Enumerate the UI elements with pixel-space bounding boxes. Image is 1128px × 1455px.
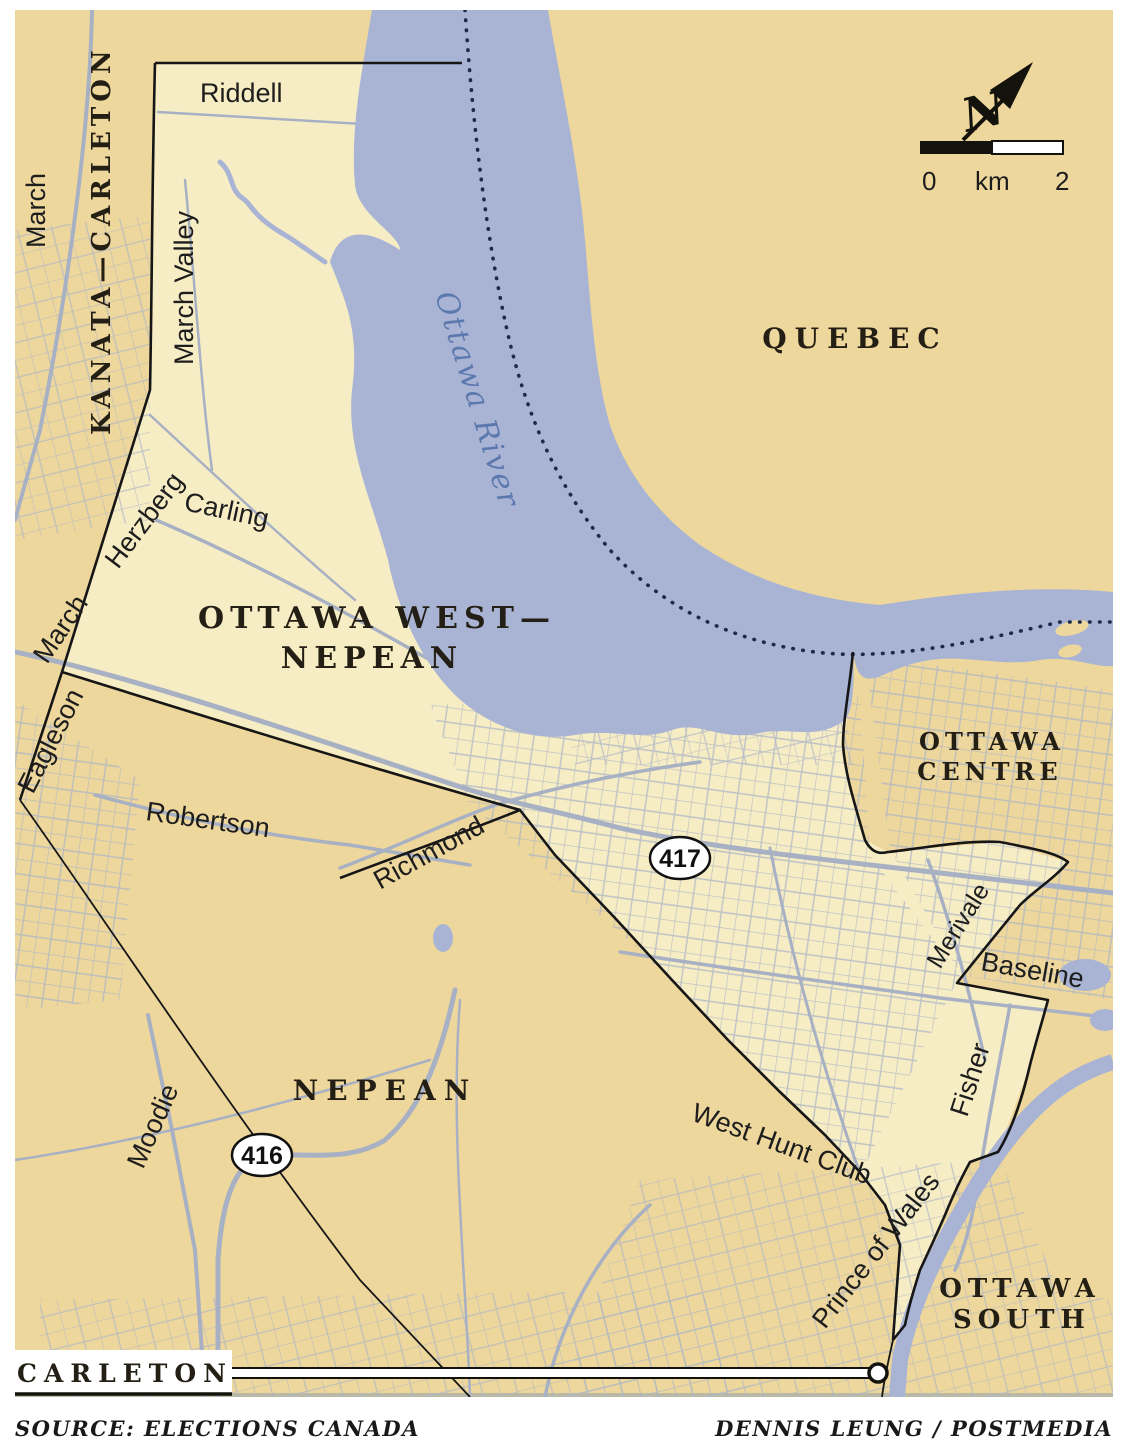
label-march-valley: March Valley xyxy=(169,210,199,365)
highway-417-label: 417 xyxy=(659,845,701,873)
scale-two: 2 xyxy=(1055,166,1069,196)
label-ottawa-south-line2: SOUTH xyxy=(953,1305,1091,1335)
highway-416-label: 416 xyxy=(241,1142,283,1170)
callout-endpoint-circle xyxy=(869,1364,887,1382)
label-nepean: NEPEAN xyxy=(293,1074,478,1107)
label-ottawa-centre-line1: OTTAWA xyxy=(919,727,1065,756)
source-credit: SOURCE: ELECTIONS CANADA xyxy=(15,1416,420,1441)
pond xyxy=(433,924,453,952)
map-canvas: 417 416 Riddell March March Valley Herzb… xyxy=(15,10,1113,1397)
label-quebec: QUEBEC xyxy=(762,322,947,355)
label-ottawa-south-line1: OTTAWA xyxy=(939,1274,1101,1304)
scale-zero: 0 xyxy=(922,166,936,196)
label-ottawa-west-line2: NEPEAN xyxy=(281,641,463,676)
map-svg: 417 416 Riddell March March Valley Herzb… xyxy=(15,10,1113,1397)
electoral-map-page: 417 416 Riddell March March Valley Herzb… xyxy=(0,0,1128,1455)
highway-shield-417: 417 xyxy=(650,837,710,879)
label-march-top: March xyxy=(21,173,51,248)
footer-credits: SOURCE: ELECTIONS CANADA DENNIS LEUNG / … xyxy=(15,1408,1113,1448)
label-kanata-carleton: KANATA—CARLETON xyxy=(87,45,117,435)
label-ottawa-west-line1: OTTAWA WEST— xyxy=(198,601,556,636)
highway-shield-416: 416 xyxy=(232,1134,292,1176)
artist-credit: DENNIS LEUNG / POSTMEDIA xyxy=(715,1416,1113,1441)
label-riddell: Riddell xyxy=(200,78,283,108)
scale-unit: km xyxy=(975,166,1010,196)
label-ottawa-centre-line2: CENTRE xyxy=(917,757,1062,786)
label-carleton: CARLETON xyxy=(17,1359,233,1388)
